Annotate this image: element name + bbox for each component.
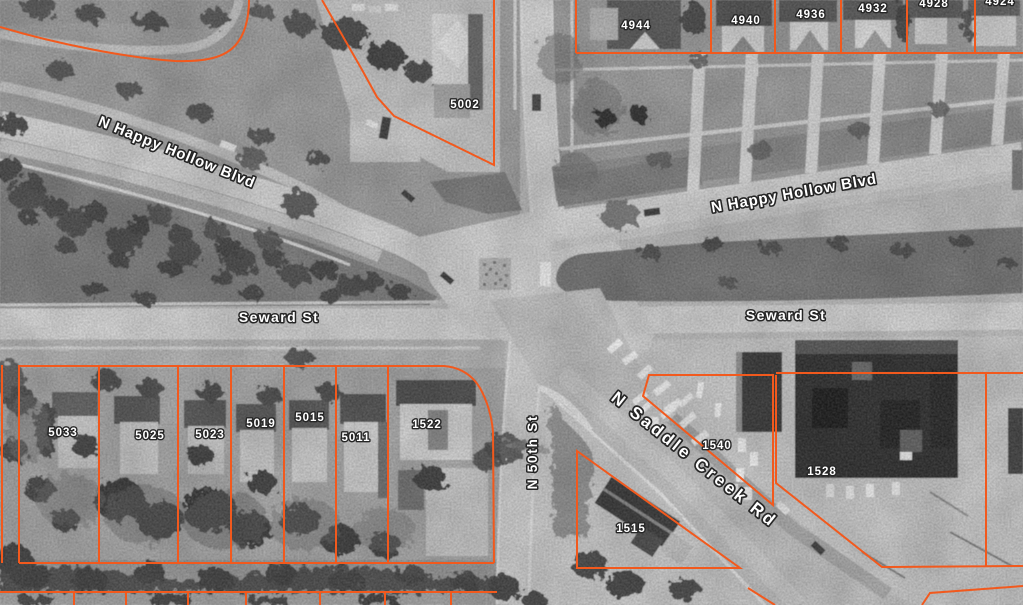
svg-text:N 50th St: N 50th St	[525, 415, 540, 490]
svg-text:5002: 5002	[450, 99, 480, 111]
svg-text:4932: 4932	[858, 3, 888, 15]
svg-text:1515: 1515	[616, 523, 646, 535]
svg-text:5033: 5033	[48, 427, 78, 439]
svg-text:5019: 5019	[246, 418, 276, 430]
svg-text:4924: 4924	[985, 0, 1015, 8]
svg-text:5023: 5023	[195, 429, 225, 441]
svg-text:5015: 5015	[295, 412, 325, 424]
svg-text:5025: 5025	[135, 430, 165, 442]
svg-text:1522: 1522	[412, 419, 442, 431]
svg-text:5011: 5011	[342, 432, 371, 444]
svg-text:4936: 4936	[796, 9, 826, 21]
svg-text:4944: 4944	[621, 20, 651, 32]
svg-text:1528: 1528	[807, 466, 837, 478]
svg-text:1540: 1540	[702, 440, 732, 452]
svg-text:4940: 4940	[731, 15, 761, 27]
svg-text:Seward St: Seward St	[746, 307, 826, 323]
svg-text:Seward St: Seward St	[239, 309, 319, 325]
svg-text:4928: 4928	[919, 0, 949, 10]
